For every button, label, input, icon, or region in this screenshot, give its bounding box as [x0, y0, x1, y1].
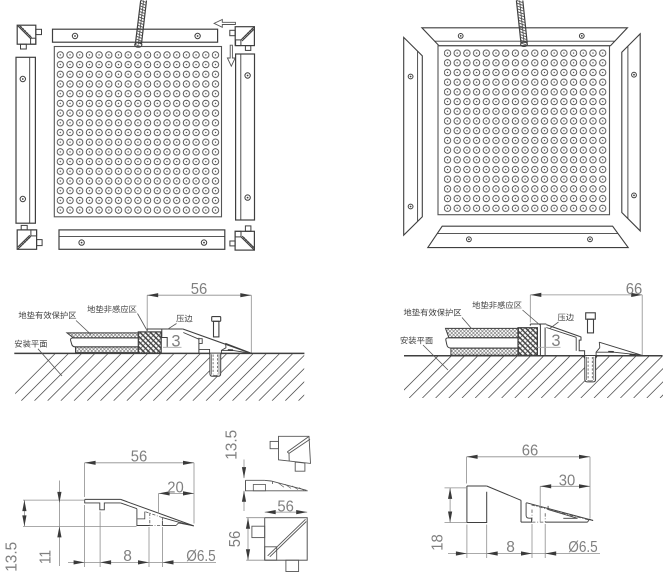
svg-text:18: 18: [430, 534, 447, 551]
svg-text:13.5: 13.5: [4, 542, 21, 572]
svg-text:3: 3: [171, 333, 180, 351]
svg-text:56: 56: [277, 499, 294, 516]
svg-text:56: 56: [227, 531, 244, 548]
svg-text:11: 11: [38, 550, 55, 564]
svg-text:56: 56: [131, 449, 148, 466]
svg-text:8: 8: [506, 539, 515, 556]
svg-text:Ø6.5: Ø6.5: [568, 539, 598, 556]
svg-text:13.5: 13.5: [223, 430, 240, 460]
svg-text:30: 30: [559, 472, 576, 489]
svg-text:Ø6.5: Ø6.5: [186, 548, 216, 565]
svg-text:8: 8: [123, 548, 132, 565]
svg-text:66: 66: [626, 281, 643, 298]
svg-text:66: 66: [522, 443, 539, 460]
svg-text:20: 20: [167, 479, 184, 496]
svg-text:56: 56: [191, 281, 208, 298]
